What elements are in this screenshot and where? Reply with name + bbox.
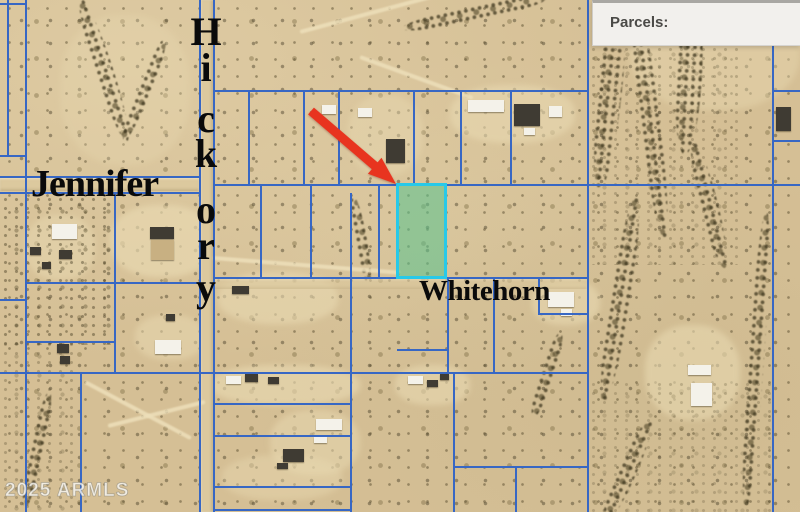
street-label-hickory-letter: r [197,226,215,266]
cleared-ground [222,455,342,500]
building-footprint [776,107,791,131]
building-footprint [277,463,288,469]
street-label-jennifer: Jennifer [31,165,158,203]
watermark: 2025 ARMLS [5,480,129,502]
building-footprint [150,227,174,239]
parcel-boundary-line [338,90,340,184]
parcel-boundary-line [213,486,350,488]
building-footprint [232,286,249,294]
parcel-boundary-line [510,90,512,184]
parcel-boundary-line [772,140,800,142]
parcel-boundary-line [213,403,350,405]
building-footprint [245,374,258,382]
building-footprint [514,104,540,126]
building-footprint [57,344,69,353]
parcel-boundary-line [453,372,455,512]
parcels-panel[interactable]: Parcels: [592,0,800,46]
map-viewport[interactable]: Jennifer Whitehorn Hickory 2025 ARMLS Pa… [0,0,800,512]
building-footprint [440,374,449,380]
building-footprint [358,108,372,117]
parcel-boundary-line [0,3,25,5]
cleared-ground [210,365,360,405]
parcel-boundary-line [0,299,25,301]
parcel-boundary-line [25,282,199,284]
parcel-boundary-line [25,341,114,343]
building-footprint [30,247,41,255]
building-footprint [226,376,241,384]
building-footprint [59,250,72,259]
parcel-boundary-line [460,90,462,184]
parcel-boundary-line [772,90,800,92]
cleared-ground [60,15,190,165]
parcel-boundary-line [213,184,800,186]
parcels-label: Parcels: [610,14,668,31]
parcel-boundary-line [587,0,589,512]
parcel-boundary-line [310,184,312,277]
parcel-boundary-line [0,372,587,374]
building-footprint [268,377,279,384]
building-footprint [166,314,175,321]
parcel-boundary-line [213,90,587,92]
dense-scrub [0,195,115,345]
building-footprint [60,356,70,364]
parcel-boundary-line [515,466,517,512]
building-footprint [42,262,51,269]
parcel-boundary-line [378,184,380,277]
parcel-boundary-line [25,0,27,512]
building-footprint [155,340,181,354]
building-footprint [151,240,174,260]
building-footprint [52,224,77,239]
parcel-boundary-line [260,184,262,277]
cleared-ground [348,95,423,175]
parcel-boundary-line [7,0,9,155]
parcel-boundary-line [303,90,305,184]
parcel-boundary-line [538,313,587,315]
building-footprint [468,100,504,112]
parcel-boundary-line [248,90,250,184]
street-label-hickory-letter: i [200,48,211,88]
parcel-boundary-line [453,466,587,468]
parcel-boundary-line [413,90,415,184]
building-footprint [316,419,342,430]
building-footprint [322,105,336,114]
parcel-boundary-line [772,0,774,512]
building-footprint [524,128,535,135]
street-label-hickory-letter: y [196,268,216,308]
parcel-boundary-line [213,509,350,511]
parcel-boundary-line [0,155,25,157]
parcel-boundary-line [350,193,352,512]
building-footprint [548,292,574,307]
highlighted-parcel[interactable] [396,183,447,279]
building-footprint [314,437,327,443]
street-label-whitehorn: Whitehorn [419,277,550,306]
building-footprint [691,383,712,406]
building-footprint [283,449,304,462]
parcel-boundary-line [213,435,350,437]
building-footprint [408,376,423,384]
parcel-boundary-line [397,349,447,351]
building-footprint [549,106,562,117]
building-footprint [386,139,405,163]
building-footprint [427,380,438,387]
street-label-hickory-letter: k [195,134,217,174]
building-footprint [688,365,711,375]
